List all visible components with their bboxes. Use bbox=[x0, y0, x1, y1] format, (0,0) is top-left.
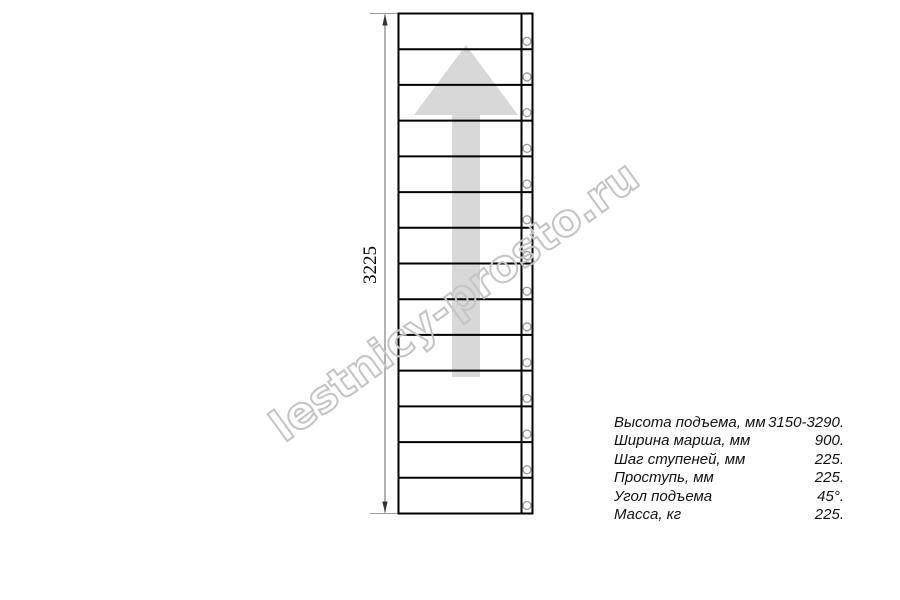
spec-label: Ширина марша, мм bbox=[614, 432, 750, 450]
spec-row: Угол подъема45°. bbox=[614, 488, 844, 506]
direction-up-arrow bbox=[414, 45, 518, 377]
spec-value: 225. bbox=[815, 469, 844, 487]
dimension-arrowhead-bottom bbox=[382, 502, 387, 514]
fastener-circle bbox=[523, 502, 531, 510]
spec-label: Шаг ступеней, мм bbox=[614, 451, 745, 469]
spec-row: Ширина марша, мм900. bbox=[614, 432, 844, 450]
fastener-circle bbox=[523, 73, 531, 81]
fastener-circle bbox=[523, 144, 531, 152]
fastener-circle bbox=[523, 430, 531, 438]
spec-row: Масса, кг225. bbox=[614, 506, 844, 524]
fastener-circle bbox=[523, 287, 531, 295]
spec-row: Проступь, мм225. bbox=[614, 469, 844, 487]
dimension-value-label: 3225 bbox=[361, 225, 381, 305]
dimension-arrowhead-top bbox=[382, 14, 387, 26]
fastener-circle bbox=[523, 180, 531, 188]
spec-value: 225. bbox=[815, 451, 844, 469]
spec-label: Масса, кг bbox=[614, 506, 681, 524]
technical-drawing-page: 3225 lestnicy-prosto.ru Высота подъема, … bbox=[0, 0, 900, 600]
fastener-circle bbox=[523, 359, 531, 367]
spec-label: Угол подъема bbox=[614, 488, 712, 506]
fastener-circle bbox=[523, 466, 531, 474]
spec-value: 3150-3290. bbox=[768, 414, 844, 432]
spec-value: 45°. bbox=[817, 488, 844, 506]
spec-label: Высота подъема, мм bbox=[614, 414, 766, 432]
spec-row: Высота подъема, мм3150-3290. bbox=[614, 414, 844, 432]
fastener-circle bbox=[523, 252, 531, 260]
fastener-circle bbox=[523, 109, 531, 117]
fastener-circle bbox=[523, 216, 531, 224]
fastener-circle bbox=[523, 323, 531, 331]
spec-label: Проступь, мм bbox=[614, 469, 714, 487]
fastener-circle bbox=[523, 394, 531, 402]
fastener-circle bbox=[523, 37, 531, 45]
spec-value: 900. bbox=[815, 432, 844, 450]
spec-row: Шаг ступеней, мм225. bbox=[614, 451, 844, 469]
specs-table: Высота подъема, мм3150-3290.Ширина марша… bbox=[614, 414, 844, 524]
spec-value: 225. bbox=[815, 506, 844, 524]
